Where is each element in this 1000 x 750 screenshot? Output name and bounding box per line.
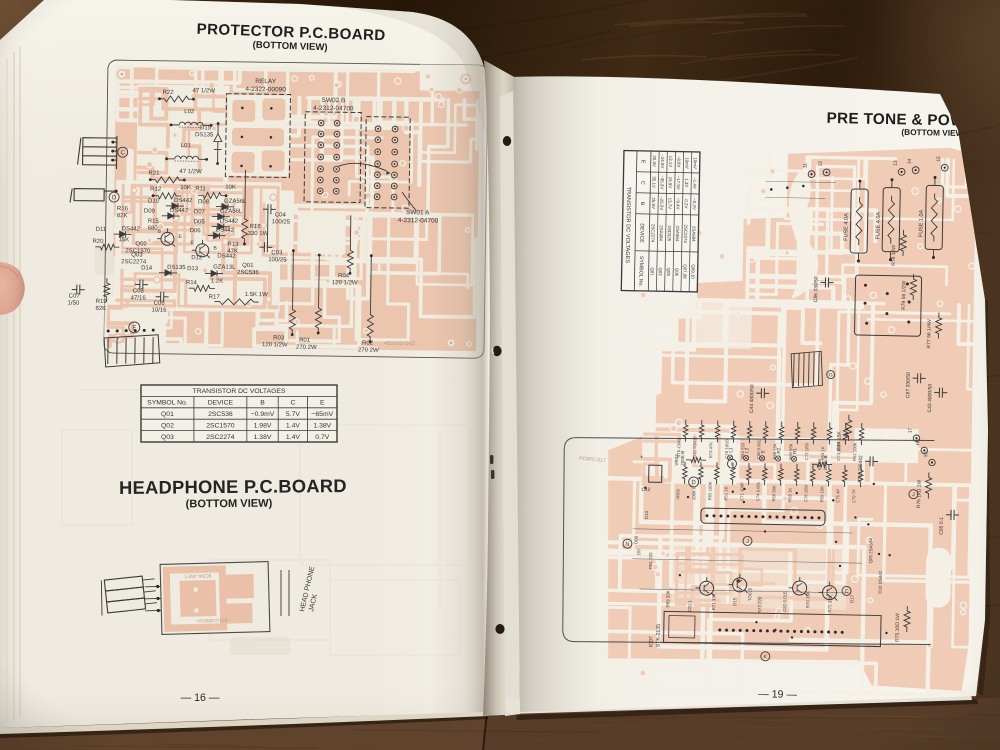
svg-text:47 1/2W: 47 1/2W	[179, 169, 202, 175]
svg-text:Q01: Q01	[242, 263, 254, 269]
svg-text:— 19 —: — 19 —	[758, 688, 797, 701]
svg-text:— 16 —: — 16 —	[181, 692, 220, 704]
svg-text:11: 11	[803, 163, 809, 168]
svg-text:G: G	[829, 372, 833, 378]
svg-text:DS442: DS442	[216, 228, 235, 234]
svg-text:100/25: 100/25	[272, 219, 291, 225]
svg-text:C03: C03	[271, 250, 283, 256]
svg-text:R61 220: R61 220	[648, 552, 653, 569]
svg-text:C75 4P: C75 4P	[835, 488, 840, 502]
svg-text:IC07: IC07	[648, 636, 654, 647]
svg-text:R04: R04	[338, 273, 350, 279]
svg-text:C: C	[844, 589, 848, 595]
svg-text:R1: R1	[792, 448, 797, 454]
svg-text:Q09,10: Q09,10	[690, 264, 695, 279]
svg-text:−35.3V: −35.3V	[659, 175, 664, 189]
svg-text:25.0V: 25.0V	[652, 155, 657, 167]
svg-text:C43 4800/50: C43 4800/50	[927, 384, 934, 413]
svg-text:0.2V: 0.2V	[684, 199, 689, 208]
svg-text:2SC1570: 2SC1570	[206, 422, 235, 429]
svg-text:R02: R02	[362, 341, 374, 347]
svg-text:5.7V: 5.7V	[286, 411, 300, 418]
svg-text:SYMBOL No.: SYMBOL No.	[147, 400, 188, 407]
svg-text:Q03: Q03	[161, 434, 174, 441]
svg-text:270 2W: 270 2W	[296, 345, 317, 351]
svg-text:R03: R03	[273, 335, 285, 341]
svg-text:C07: C07	[69, 293, 81, 299]
svg-text:Q02: Q02	[135, 241, 147, 247]
svg-text:Q03: Q03	[131, 252, 143, 258]
svg-text:Q05: Q05	[666, 268, 671, 277]
svg-text:R13: R13	[227, 242, 239, 248]
svg-text:B: B	[260, 400, 265, 407]
svg-text:TO015: TO015	[747, 587, 752, 601]
svg-text:GZA56L: GZA56L	[220, 209, 243, 215]
svg-text:H6: H6	[915, 439, 921, 446]
svg-text:C: C	[639, 181, 645, 185]
svg-text:1.38V: 1.38V	[254, 434, 272, 441]
svg-text:17: 17	[908, 427, 914, 433]
svg-text:L02: L02	[184, 109, 195, 115]
svg-text:D13: D13	[187, 266, 199, 272]
svg-text:HSSB2E3T25B: HSSB2E3T25B	[197, 618, 228, 624]
svg-text:DS135: DS135	[167, 265, 186, 271]
svg-text:2SC2274: 2SC2274	[206, 434, 235, 441]
svg-text:L2: L2	[744, 447, 749, 453]
svg-text:10mV: 10mV	[693, 157, 698, 169]
svg-text:D: D	[691, 480, 696, 486]
svg-text:−17.9V: −17.9V	[676, 176, 681, 190]
svg-text:D: D	[112, 195, 117, 201]
svg-text:C78 1/50: C78 1/50	[803, 484, 808, 502]
svg-text:D09: D09	[633, 535, 638, 544]
svg-text:−8.8V: −8.8V	[676, 156, 681, 168]
svg-text:R58 1K: R58 1K	[787, 488, 792, 502]
svg-text:C04: C04	[275, 212, 287, 218]
svg-text:R18: R18	[250, 224, 262, 230]
svg-text:−1.4V: −1.4V	[692, 177, 697, 189]
svg-text:D09: D09	[144, 209, 156, 215]
svg-text:D11: D11	[96, 227, 107, 233]
svg-text:−9.4V: −9.4V	[675, 198, 680, 210]
svg-text:47/16: 47/16	[131, 295, 147, 301]
svg-text:Q01: Q01	[650, 267, 655, 276]
svg-text:12: 12	[818, 161, 824, 167]
svg-text:Q05 2SA984: Q05 2SA984	[868, 538, 873, 564]
svg-text:R59 15K: R59 15K	[819, 486, 824, 503]
svg-text:DS442: DS442	[174, 198, 193, 204]
svg-text:R21: R21	[148, 171, 160, 177]
svg-text:270 2W: 270 2W	[358, 348, 379, 354]
svg-text:FUSE 4.0A: FUSE 4.0A	[843, 213, 850, 241]
svg-text:DEVICE: DEVICE	[208, 400, 234, 407]
svg-text:200K B: 200K B	[691, 486, 696, 500]
svg-text:1.38V: 1.38V	[313, 422, 331, 429]
svg-text:SYMBOL No.: SYMBOL No.	[637, 256, 644, 287]
svg-text:Q02: Q02	[161, 422, 174, 429]
svg-text:1.4V: 1.4V	[286, 422, 300, 429]
svg-text:C74 0.001: C74 0.001	[755, 481, 760, 501]
svg-text:9CNK-45EY: 9CNK-45EY	[183, 572, 211, 579]
svg-text:DS442: DS442	[122, 226, 141, 232]
svg-text:J: J	[746, 539, 749, 545]
svg-text:47 1/2W: 47 1/2W	[193, 88, 216, 94]
svg-text:C87 330/50: C87 330/50	[905, 372, 911, 398]
svg-text:FUSE 1.0A: FUSE 1.0A	[918, 209, 925, 237]
svg-text:R51 1K: R51 1K	[723, 486, 728, 500]
svg-text:+: +	[640, 455, 644, 461]
svg-text:R76 1kΩ 1W: R76 1kΩ 1W	[916, 479, 923, 508]
svg-text:330 1W: 330 1W	[248, 231, 269, 237]
svg-text:2SC2274: 2SC2274	[683, 224, 688, 243]
svg-text:10mV: 10mV	[684, 157, 689, 169]
svg-text:1.98V: 1.98V	[254, 422, 272, 429]
svg-text:82K: 82K	[95, 306, 106, 312]
svg-text:E: E	[760, 450, 765, 453]
svg-text:R22: R22	[163, 90, 175, 96]
svg-text:D15: D15	[732, 597, 737, 606]
svg-text:2SC536: 2SC536	[237, 270, 259, 276]
svg-text:R2: R2	[776, 447, 781, 453]
svg-text:R52 100K: R52 100K	[852, 442, 857, 461]
svg-text:STK-C042: STK-C042	[676, 437, 681, 457]
svg-text:15K: 15K	[118, 237, 129, 243]
svg-text:120 1/2W: 120 1/2W	[262, 342, 288, 348]
svg-text:R53 1K: R53 1K	[820, 446, 825, 460]
svg-text:R75 10Ω 1W: R75 10Ω 1W	[895, 613, 902, 642]
svg-text:35.1V: 35.1V	[651, 176, 656, 188]
svg-text:C71 100P: C71 100P	[739, 482, 744, 501]
svg-text:R15: R15	[148, 219, 160, 225]
svg-text:4026207040: 4026207040	[384, 341, 415, 347]
svg-text:14: 14	[907, 158, 913, 164]
svg-text:10/16: 10/16	[151, 308, 167, 314]
svg-text:SW02 B: SW02 B	[321, 97, 345, 104]
svg-text:D0: D0	[636, 549, 641, 555]
svg-text:D12: D12	[191, 255, 203, 261]
svg-text:DEVICE: DEVICE	[638, 223, 644, 243]
svg-text:4-2312-04700: 4-2312-04700	[313, 105, 354, 113]
svg-text:HEADPHONE P.C.BOARD: HEADPHONE P.C.BOARD	[119, 475, 347, 498]
svg-text:R55 100K: R55 100K	[707, 481, 712, 500]
svg-text:D18 DS442: D18 DS442	[878, 570, 883, 593]
svg-text:R77 56 1/4W: R77 56 1/4W	[926, 319, 933, 349]
svg-text:R20: R20	[92, 239, 104, 245]
svg-text:D10: D10	[148, 199, 160, 205]
svg-text:D08: D08	[198, 199, 210, 205]
svg-text:47K: 47K	[227, 249, 238, 255]
svg-text:J: J	[912, 492, 915, 498]
svg-text:1/50: 1/50	[68, 300, 80, 306]
svg-text:120 1/2W: 120 1/2W	[332, 280, 358, 286]
svg-text:2SA984: 2SA984	[675, 226, 680, 242]
svg-text:STK-2135: STK-2135	[655, 624, 661, 648]
svg-text:C: C	[290, 400, 295, 407]
svg-text:R69 33K: R69 33K	[665, 590, 670, 607]
svg-text:GZA13L: GZA13L	[213, 264, 236, 270]
svg-text:(BOTTOM VIEW): (BOTTOM VIEW)	[186, 498, 273, 511]
svg-text:D06: D06	[190, 228, 202, 234]
svg-text:C85 0.1: C85 0.1	[939, 517, 945, 535]
svg-text:2SA984: 2SA984	[658, 225, 663, 241]
svg-text:E: E	[320, 400, 325, 407]
svg-text:C81 1: C81 1	[687, 600, 692, 612]
svg-text:R01: R01	[299, 338, 311, 344]
svg-text:−65mV: −65mV	[311, 411, 333, 418]
svg-text:R17: R17	[209, 294, 221, 300]
svg-text:SW01 A: SW01 A	[406, 209, 430, 216]
svg-text:4-2322-00090: 4-2322-00090	[245, 86, 286, 94]
svg-text:GZA56L: GZA56L	[224, 199, 247, 205]
svg-text:D15: D15	[200, 125, 212, 131]
svg-text:13.7V: 13.7V	[667, 198, 672, 210]
svg-text:Q07,08: Q07,08	[682, 264, 687, 279]
svg-text:2SA984: 2SA984	[691, 226, 696, 242]
svg-text:0.7V: 0.7V	[315, 434, 329, 441]
svg-text:VR03: VR03	[675, 488, 680, 499]
svg-text:R11: R11	[195, 186, 206, 192]
svg-text:N: N	[625, 542, 629, 548]
svg-text:R78 10W: R78 10W	[891, 245, 897, 266]
svg-text:−0.9mV: −0.9mV	[251, 411, 275, 418]
svg-text:DS442: DS442	[220, 219, 239, 225]
svg-text:1.5K 1W: 1.5K 1W	[245, 292, 268, 298]
svg-text:1.4V: 1.4V	[286, 434, 300, 441]
svg-text:L01: L01	[181, 143, 192, 149]
svg-text:C44 4800/50: C44 4800/50	[749, 384, 756, 413]
svg-text:2SC2274: 2SC2274	[650, 224, 655, 243]
svg-text:D17: D17	[849, 594, 854, 603]
svg-text:C79 7P: C79 7P	[851, 489, 856, 503]
svg-text:16.9V: 16.9V	[668, 177, 673, 189]
svg-text:C72 1/50: C72 1/50	[804, 442, 809, 460]
svg-text:15: 15	[923, 452, 929, 458]
svg-text:2SD325: 2SD325	[667, 225, 672, 242]
svg-text:D13: D13	[644, 510, 649, 519]
svg-text:−24.9V: −24.9V	[660, 154, 665, 168]
svg-text:R73 47K: R73 47K	[708, 442, 713, 459]
svg-text:C82 0.015: C82 0.015	[782, 591, 787, 612]
svg-text:DS442: DS442	[170, 208, 189, 214]
svg-text:13.1V: 13.1V	[668, 156, 673, 168]
svg-text:C73 100P: C73 100P	[836, 442, 841, 461]
svg-text:1.2K: 1.2K	[211, 278, 223, 284]
svg-text:(BOTTOM VIEW): (BOTTOM VIEW)	[901, 127, 966, 138]
svg-text:10K: 10K	[180, 185, 191, 191]
svg-text:C: C	[120, 150, 125, 156]
svg-text:R16: R16	[117, 206, 129, 212]
svg-text:R79 56 1/2W: R79 56 1/2W	[901, 280, 908, 310]
svg-text:TRANSISTOR DC VOLTAGES: TRANSISTOR DC VOLTAGES	[193, 388, 286, 395]
svg-text:D15 TO015: D15 TO015	[692, 436, 697, 458]
svg-text:R73 220: R73 220	[757, 596, 762, 613]
svg-text:R56 56K: R56 56K	[771, 485, 776, 502]
svg-text:Q06: Q06	[674, 268, 679, 277]
svg-text:R70 33K: R70 33K	[805, 591, 810, 608]
svg-text:15: 15	[936, 156, 942, 162]
svg-text:R12: R12	[150, 187, 162, 193]
svg-text:RELAY: RELAY	[255, 78, 277, 85]
svg-text:L1: L1	[728, 447, 733, 453]
svg-text:R71 33K: R71 33K	[711, 593, 716, 610]
svg-text:−0.2V: −0.2V	[692, 198, 697, 210]
svg-text:2SC536: 2SC536	[208, 411, 233, 418]
svg-text:100/25: 100/25	[268, 257, 287, 263]
svg-text:1.3V: 1.3V	[684, 178, 689, 187]
svg-text:R72 33K: R72 33K	[827, 595, 832, 612]
svg-text:K: K	[763, 654, 767, 660]
svg-text:Q01: Q01	[161, 411, 174, 418]
svg-text:25.5V: 25.5V	[651, 197, 656, 209]
svg-text:D14: D14	[141, 265, 153, 271]
svg-text:D05: D05	[194, 219, 206, 225]
svg-text:R19: R19	[96, 299, 108, 305]
svg-text:R14: R14	[186, 280, 198, 286]
svg-text:82K: 82K	[117, 213, 128, 219]
svg-text:−25.5V: −25.5V	[659, 196, 664, 210]
svg-text:10K: 10K	[225, 185, 236, 191]
svg-text:13: 13	[893, 160, 899, 166]
svg-text:Q02: Q02	[658, 267, 663, 276]
svg-text:D07: D07	[194, 209, 206, 215]
svg-text:DS135: DS135	[195, 132, 214, 138]
svg-text:C86 330/50: C86 330/50	[813, 276, 819, 302]
svg-text:FUSE 4.0A: FUSE 4.0A	[875, 212, 882, 240]
